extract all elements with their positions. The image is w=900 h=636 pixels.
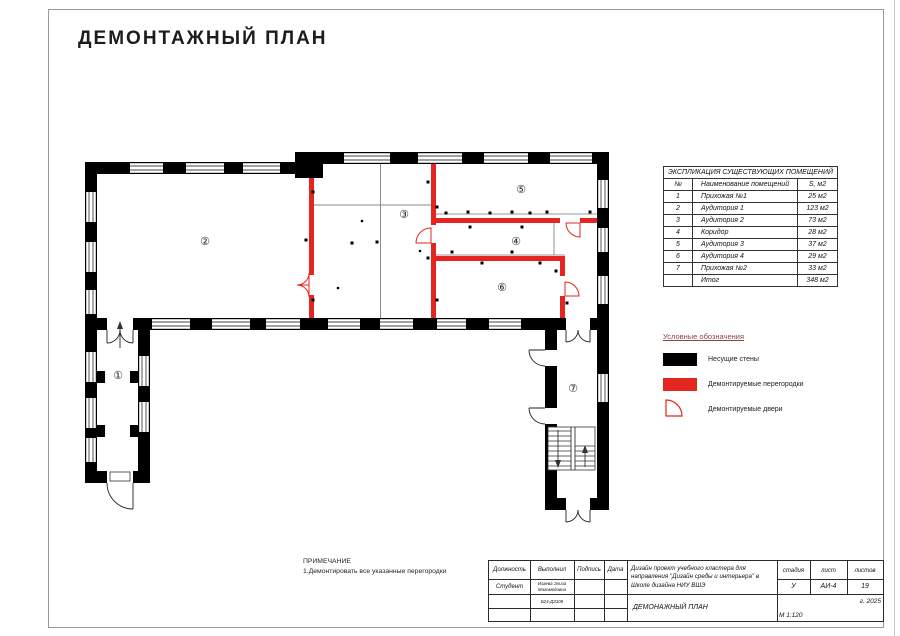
sheet-header: лист <box>810 564 847 577</box>
room-label-7: ⑦ <box>568 383 578 395</box>
table-title-row: ЭКСПЛИКАЦИЯ СУЩЕСТВУЮЩИХ ПОМЕЩЕНИЙ <box>664 167 838 179</box>
sheets-value: 19 <box>847 580 883 593</box>
col-header-area: S, м2 <box>798 179 838 191</box>
note-line: 1.Демонтировать все указанные перегородк… <box>303 567 447 577</box>
legend-title: Условные обозначения <box>663 332 873 341</box>
stage-value: У <box>777 580 810 593</box>
legend-item-doors: Демонтируемые двери <box>663 401 873 417</box>
legend-item-label: Демонтируемые перегородки <box>708 381 804 388</box>
room-label-6: ⑥ <box>497 282 507 294</box>
scale-label: М 1:120 <box>779 610 819 620</box>
table-row: 2Аудитория 1123 м2 <box>664 203 838 215</box>
plan-geometry <box>85 152 609 522</box>
room-label-4: ④ <box>511 236 521 248</box>
signature-header: Подпись <box>574 563 604 577</box>
stage-header: стадия <box>777 564 810 577</box>
executor-name: Изаева Элиза Магомедовна <box>530 579 574 594</box>
explication-table-body: 1Прихожая №125 м22Аудитория 1123 м23Ауди… <box>664 191 838 287</box>
group-code: Б24-ДЗ108 <box>530 595 574 607</box>
table-row: Итог348 м2 <box>664 275 838 287</box>
position-value: Студент <box>489 580 530 593</box>
title-block: Должность Выполнил Подпись Дата Студент … <box>488 560 884 622</box>
project-description: Дизайн проект учебного кластера для напр… <box>629 562 777 593</box>
table-row: 1Прихожая №125 м2 <box>664 191 838 203</box>
position-header: Должность <box>489 563 530 577</box>
legend: Условные обозначения Несущие стены Демон… <box>663 332 873 426</box>
legend-item-walls: Несущие стены <box>663 351 873 367</box>
executor-header: Выполнил <box>530 563 574 577</box>
demolished-door-icon <box>663 397 697 421</box>
table-row: 4Коридор28 м2 <box>664 227 838 239</box>
col-header-num: № <box>664 179 693 191</box>
room-label-5: ⑤ <box>516 184 526 196</box>
floor-plan-svg: ① ② ③ ④ ⑤ ⑥ ⑦ <box>0 0 900 636</box>
note-title: ПРИМЕЧАНИЕ <box>303 557 447 567</box>
demolished-partition-swatch <box>663 378 697 391</box>
date-header: Дата <box>604 563 627 577</box>
year-label: г. 2025 <box>841 596 881 606</box>
room-label-1: ① <box>113 370 123 382</box>
legend-item-label: Несущие стены <box>708 356 759 363</box>
room-label-2: ② <box>200 236 210 248</box>
table-title: ЭКСПЛИКАЦИЯ СУЩЕСТВУЮЩИХ ПОМЕЩЕНИЙ <box>664 167 838 179</box>
col-header-name: Наименование помещений <box>693 179 798 191</box>
table-row: 3Аудитория 273 м2 <box>664 215 838 227</box>
sheet-value: АИ-4 <box>810 580 847 593</box>
table-row: 6Аудитория 429 м2 <box>664 251 838 263</box>
explication-table: ЭКСПЛИКАЦИЯ СУЩЕСТВУЮЩИХ ПОМЕЩЕНИЙ № Наи… <box>663 166 838 287</box>
table-row: 5Аудитория 337 м2 <box>664 239 838 251</box>
table-row: 7Прихожая №233 м2 <box>664 263 838 275</box>
bearing-wall-swatch <box>663 353 697 366</box>
room-label-3: ③ <box>399 209 409 221</box>
note: ПРИМЕЧАНИЕ 1.Демонтировать все указанные… <box>303 557 447 577</box>
drawing-title: ДЕМОНАЖНЫЙ ПЛАН <box>629 594 779 621</box>
sheets-header: листов <box>847 564 883 577</box>
table-header-row: № Наименование помещений S, м2 <box>664 179 838 191</box>
legend-item-partitions: Демонтируемые перегородки <box>663 376 873 392</box>
drawing-sheet: ДЕМОНТАЖНЫЙ ПЛАН ① ② ③ ④ ⑤ ⑥ ⑦ ЭКСПЛИКАЦ… <box>0 0 900 636</box>
legend-item-label: Демонтируемые двери <box>708 406 783 413</box>
